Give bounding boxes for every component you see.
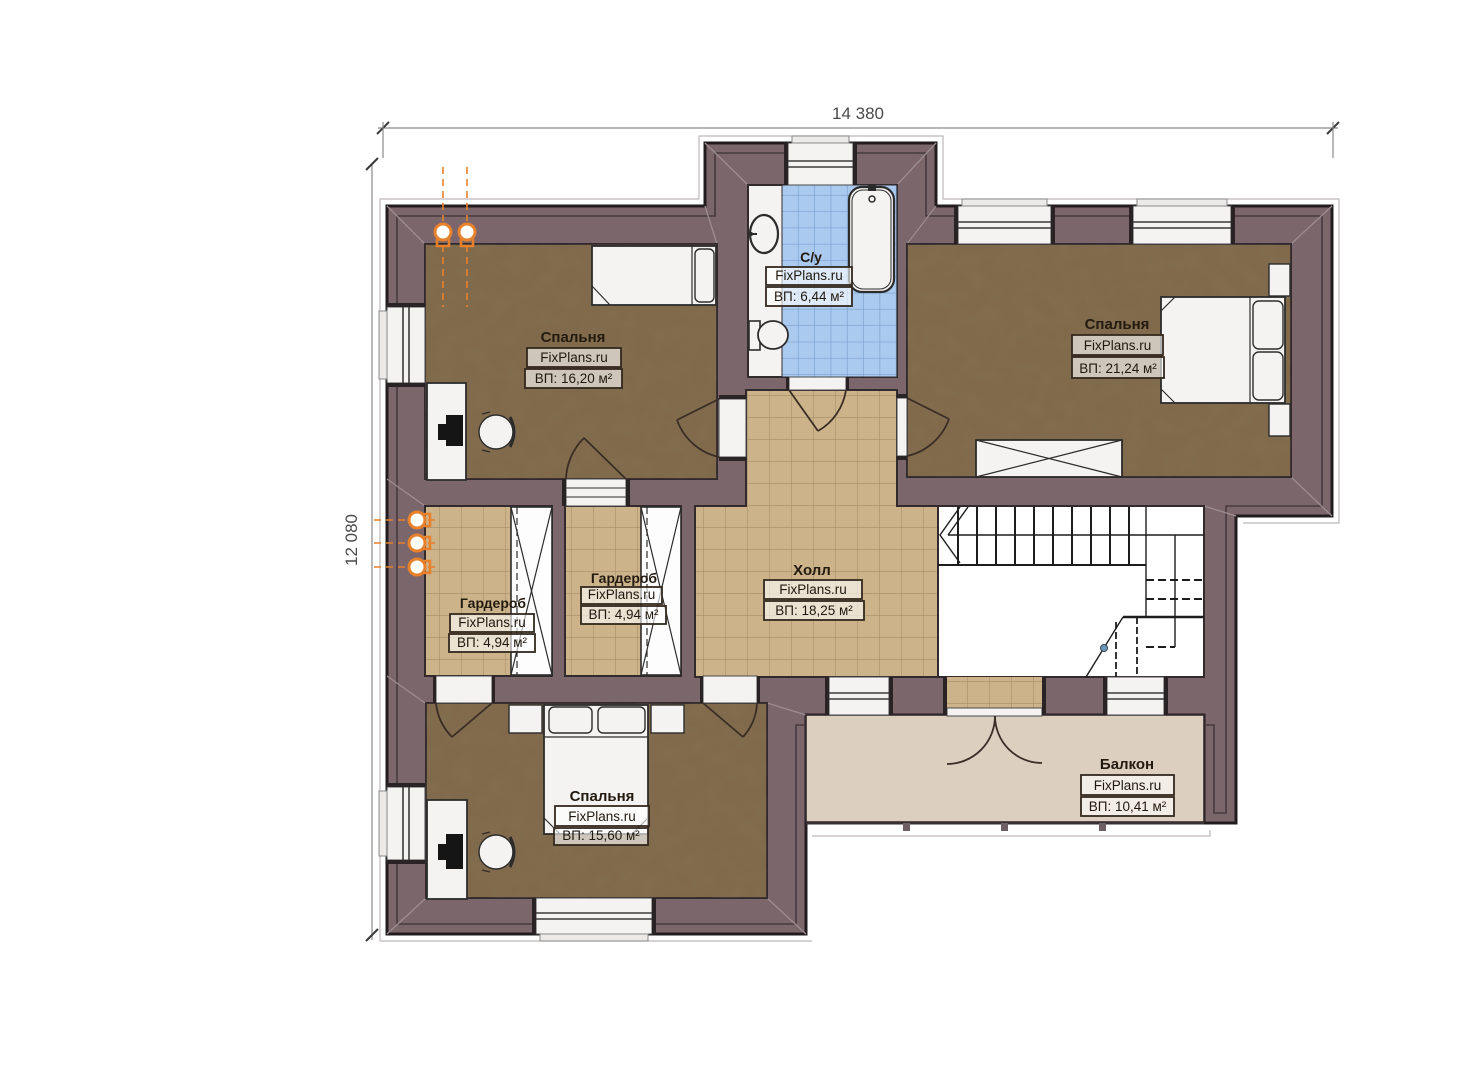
svg-text:FixPlans.ru: FixPlans.ru xyxy=(568,809,636,824)
svg-text:С/у: С/у xyxy=(800,249,822,265)
svg-text:ВП: 10,41 м²: ВП: 10,41 м² xyxy=(1089,799,1167,814)
svg-text:Спальня: Спальня xyxy=(570,788,635,805)
svg-text:FixPlans.ru: FixPlans.ru xyxy=(588,587,656,602)
svg-text:FixPlans.ru: FixPlans.ru xyxy=(779,582,847,597)
svg-text:ВП: 15,60 м²: ВП: 15,60 м² xyxy=(562,828,640,843)
svg-text:ВП: 4,94 м²: ВП: 4,94 м² xyxy=(588,607,659,622)
svg-text:Балкон: Балкон xyxy=(1100,756,1154,773)
svg-text:ВП: 18,25 м²: ВП: 18,25 м² xyxy=(775,603,853,618)
svg-text:Спальня: Спальня xyxy=(541,329,606,346)
svg-text:12 080: 12 080 xyxy=(342,514,361,566)
svg-text:Спальня: Спальня xyxy=(1085,316,1150,333)
svg-text:FixPlans.ru: FixPlans.ru xyxy=(775,268,843,283)
svg-text:Гардероб: Гардероб xyxy=(460,595,527,611)
svg-text:FixPlans.ru: FixPlans.ru xyxy=(458,615,526,630)
svg-text:FixPlans.ru: FixPlans.ru xyxy=(1084,338,1152,353)
svg-text:Гардероб: Гардероб xyxy=(591,570,658,586)
svg-text:ВП: 21,24 м²: ВП: 21,24 м² xyxy=(1079,361,1157,376)
svg-text:FixPlans.ru: FixPlans.ru xyxy=(1094,778,1162,793)
svg-text:ВП: 16,20 м²: ВП: 16,20 м² xyxy=(535,371,613,386)
svg-text:FixPlans.ru: FixPlans.ru xyxy=(540,350,608,365)
svg-text:14 380: 14 380 xyxy=(832,104,884,123)
svg-text:Холл: Холл xyxy=(793,562,831,579)
svg-text:ВП: 6,44 м²: ВП: 6,44 м² xyxy=(774,289,845,304)
svg-text:ВП: 4,94 м²: ВП: 4,94 м² xyxy=(457,635,528,650)
